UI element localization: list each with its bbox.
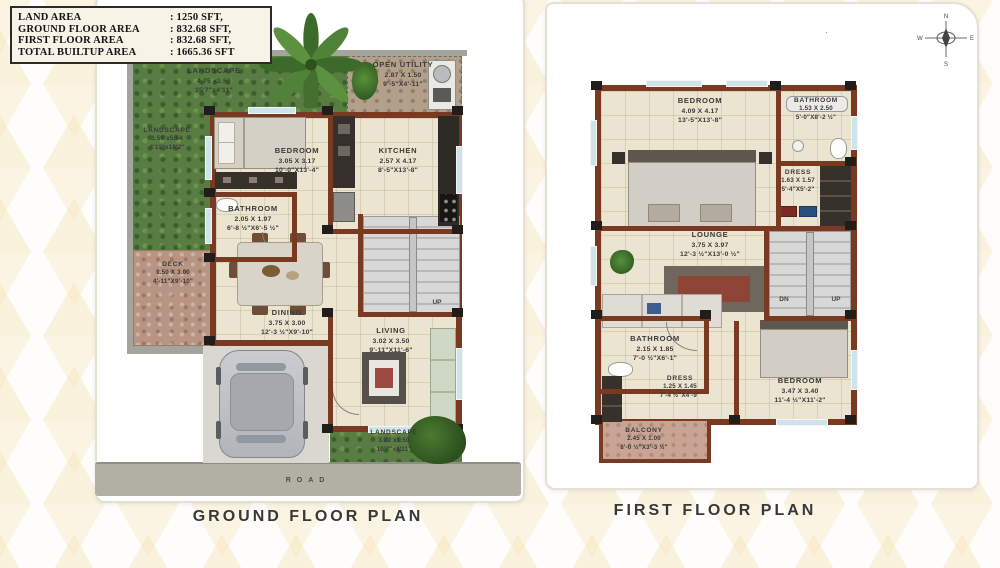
compass-east-label: E <box>970 36 974 42</box>
compass-icon: N S E W <box>916 10 976 68</box>
room-name: BATHROOM <box>210 204 296 215</box>
compass-south-label: S <box>944 62 948 68</box>
room-dim-metric: 3.75 X 3.00 <box>238 319 336 329</box>
column-marker <box>322 225 333 234</box>
room-label-bathroom1: BATHROOM 1.53 X 2.50 5'-0"X8'-2 ½" <box>778 96 854 123</box>
room-dim-imperial: 12'-3 ½"X13'-0 ½" <box>652 250 768 260</box>
wall <box>358 214 363 317</box>
fridge-icon <box>333 192 355 222</box>
sink-icon <box>792 140 804 152</box>
dining-table-icon <box>237 242 323 306</box>
column-marker <box>322 424 333 433</box>
room-dim-metric: 1.63 X 1.57 <box>770 177 826 186</box>
road-strip: ROAD <box>95 462 521 496</box>
room-dim-imperial: 10'7"x4'11" <box>348 446 440 455</box>
room-dim-imperial: 8'-0 ½"X3'-3 ½" <box>606 444 682 453</box>
bed-icon <box>760 320 848 378</box>
room-name: BALCONY <box>606 426 682 435</box>
room-dim-imperial: 7'-0 ½"X6'-1" <box>606 354 704 364</box>
room-dim-imperial: 4'-11"X9'-10" <box>136 278 210 287</box>
room-label-bedroom: BEDROOM 3.05 X 3.17 10'-0"X13'-4" <box>242 146 352 176</box>
column-marker <box>700 310 711 319</box>
storage-box-icon <box>779 206 797 217</box>
room-dim-metric: 2.45 X 1.00 <box>606 435 682 444</box>
room-label-bathroom2: BATHROOM 2.15 X 1.85 7'-0 ½"X6'-1" <box>606 334 704 364</box>
room-dim-metric: 4.75 x1.50 <box>158 77 270 87</box>
window <box>726 80 768 87</box>
room-label-dress2: DRESS 1.25 X 1.45 7'-4 ½"X4'-9" <box>638 374 722 401</box>
column-marker <box>452 106 463 115</box>
toilet-icon <box>830 138 847 159</box>
legend-label: FIRST FLOOR AREA <box>18 35 170 47</box>
nightstand-icon <box>612 152 625 164</box>
room-label-bedroom2: BEDROOM 3.47 X 3.40 11'-4 ½"X11'-2" <box>744 376 856 406</box>
column-marker <box>591 221 602 230</box>
room-label-balcony: BALCONY 2.45 X 1.00 8'-0 ½"X3'-3 ½" <box>606 426 682 453</box>
room-dim-metric: 3.22 x1.50 <box>348 437 440 446</box>
room-dim-metric: 1.25 X 1.45 <box>638 383 722 392</box>
first-floor-title: FIRST FLOOR PLAN <box>560 502 870 520</box>
window <box>776 419 828 426</box>
room-label-bedroom1: BEDROOM 4.09 X 4.17 13'-5"X13'-8" <box>640 96 760 126</box>
stove-icon <box>440 194 457 222</box>
room-name: BATHROOM <box>778 96 854 105</box>
room-label-kitchen: KITCHEN 2.57 X 4.17 8'-5"X13'-8" <box>356 146 440 176</box>
window <box>590 120 597 166</box>
column-marker <box>452 225 463 234</box>
room-dim-imperial: 9'-11"X11'-6" <box>346 346 436 356</box>
room-label-landscape-top: LANDSCAPE 4.75 x1.50 15'7"x4'11" <box>158 66 270 96</box>
column-marker <box>845 310 856 319</box>
legend-value: : 1250 SFT, <box>170 12 223 24</box>
column-marker <box>591 310 602 319</box>
room-dim-metric: 1.53 X 2.50 <box>778 105 854 114</box>
room-dim-metric: 2.15 X 1.85 <box>606 345 704 355</box>
door-swing <box>826 32 827 33</box>
wall <box>358 312 462 317</box>
room-name: KITCHEN <box>356 146 440 157</box>
wall <box>734 321 739 421</box>
room-name: BEDROOM <box>242 146 352 157</box>
column-marker <box>452 308 463 317</box>
wall <box>210 340 332 346</box>
column-marker <box>204 188 215 197</box>
room-dim-imperial: 11'-4 ½"X11'-2" <box>744 396 856 406</box>
room-dim-imperial: 8'-5"X13'-8" <box>356 166 440 176</box>
legend-value: : 1665.36 SFT <box>170 47 235 59</box>
legend-row: GROUND FLOOR AREA : 832.68 SFT, <box>18 24 264 36</box>
window <box>248 107 296 114</box>
nightstand-icon <box>759 152 772 164</box>
wall <box>210 192 296 197</box>
floor-plan-sheet: LAND AREA : 1250 SFT, GROUND FLOOR AREA … <box>0 0 1000 568</box>
room-dim-imperial: 9'-5"X4'-11" <box>350 80 456 90</box>
room-dim-imperial: 10'-0"X13'-4" <box>242 166 352 176</box>
room-dim-metric: 3.02 X 3.50 <box>346 337 436 347</box>
room-dim-imperial: 5'-4"X5'-2" <box>770 186 826 195</box>
room-dim-imperial: 5'-0"X8'-2 ½" <box>778 114 854 123</box>
wall <box>601 316 711 321</box>
room-dim-metric: 3.47 X 3.40 <box>744 387 856 397</box>
window <box>646 80 702 87</box>
palm-tree-icon <box>258 12 364 108</box>
column-marker <box>204 106 215 115</box>
room-dim-metric: 1.50 X 3.00 <box>136 269 210 278</box>
legend-label: TOTAL BUILTUP AREA <box>18 47 170 59</box>
column-marker <box>845 415 856 424</box>
room-dim-metric: 4.09 X 4.17 <box>640 107 760 117</box>
column-marker <box>591 415 602 424</box>
legend-value: : 832.68 SFT, <box>170 35 231 47</box>
room-dim-metric: 3.05 X 3.17 <box>242 157 352 167</box>
wall <box>764 316 851 321</box>
room-label-dress1: DRESS 1.63 X 1.57 5'-4"X5'-2" <box>770 168 826 195</box>
room-dim-imperial: 12'-3 ½"X9'-10" <box>238 328 336 338</box>
room-name: DRESS <box>770 168 826 177</box>
room-dim-imperial: 7'-4 ½"X4'-9" <box>638 392 722 401</box>
room-name: LANDSCAPE <box>158 66 270 77</box>
legend-row: LAND AREA : 1250 SFT, <box>18 12 264 24</box>
legend-label: LAND AREA <box>18 12 170 24</box>
room-name: DRESS <box>638 374 722 383</box>
column-marker <box>845 157 856 166</box>
room-name: LANDSCAPE <box>126 126 208 135</box>
column-marker <box>770 81 781 90</box>
room-dim-metric: 2.57 X 4.17 <box>356 157 440 167</box>
room-name: DECK <box>136 260 210 269</box>
room-name: OPEN UTILITY <box>350 60 456 71</box>
window <box>456 348 463 400</box>
room-dim-metric: 2.05 X 1.97 <box>210 215 296 225</box>
column-marker <box>845 221 856 230</box>
legend-row: FIRST FLOOR AREA : 832.68 SFT, <box>18 35 264 47</box>
stairs-dn-label: DN <box>772 296 796 303</box>
wall <box>776 161 851 166</box>
room-dim-imperial: 13'-5"X13'-8" <box>640 116 760 126</box>
road-label: ROAD <box>286 477 331 484</box>
room-label-landscape-left: LANDSCAPE 1.50 x5.54 4'11"x18'2" <box>126 126 208 153</box>
room-dim-metric: 2.87 X 1.50 <box>350 71 456 81</box>
storage-box-icon <box>799 206 817 217</box>
ground-floor-title: GROUND FLOOR PLAN <box>95 508 521 526</box>
window <box>456 146 463 194</box>
area-legend: LAND AREA : 1250 SFT, GROUND FLOOR AREA … <box>10 6 272 64</box>
legend-label: GROUND FLOOR AREA <box>18 24 170 36</box>
column-marker <box>845 81 856 90</box>
room-name: DINING <box>238 308 336 319</box>
room-label-lounge: LOUNGE 3.75 X 3.97 12'-3 ½"X13'-0 ½" <box>652 230 768 260</box>
room-label-landscape-bottom: LANDSCAPE 3.22 x1.50 10'7"x4'11" <box>348 428 440 455</box>
room-dim-metric: 1.50 x5.54 <box>126 135 208 144</box>
room-label-deck: DECK 1.50 X 3.00 4'-11"X9'-10" <box>136 260 210 287</box>
toilet-icon <box>608 362 633 377</box>
room-dim-imperial: 6'-8 ½"X6'-5 ½" <box>210 224 296 234</box>
car-icon <box>219 350 305 458</box>
stairs-icon <box>769 231 851 317</box>
column-marker <box>729 415 740 424</box>
room-name: BEDROOM <box>640 96 760 107</box>
legend-value: : 832.68 SFT, <box>170 24 231 36</box>
room-dim-metric: 3.75 X 3.97 <box>652 241 768 251</box>
room-name: LIVING <box>346 326 436 337</box>
room-name: LOUNGE <box>652 230 768 241</box>
room-name: BATHROOM <box>606 334 704 345</box>
compass-north-label: N <box>944 14 948 20</box>
stairs-up-label: UP <box>824 296 848 303</box>
room-name: LANDSCAPE <box>348 428 440 437</box>
column-marker <box>204 336 215 345</box>
tv-unit-icon <box>362 352 406 404</box>
room-dim-imperial: 4'11"x18'2" <box>126 144 208 153</box>
room-label-dining: DINING 3.75 X 3.00 12'-3 ½"X9'-10" <box>238 308 336 338</box>
room-label-bathroom: BATHROOM 2.05 X 1.97 6'-8 ½"X6'-5 ½" <box>210 204 296 234</box>
room-label-open-utility: OPEN UTILITY 2.87 X 1.50 9'-5"X4'-11" <box>350 60 456 90</box>
legend-row: TOTAL BUILTUP AREA : 1665.36 SFT <box>18 47 264 59</box>
window <box>590 246 597 286</box>
bed-icon <box>628 150 756 228</box>
room-dim-imperial: 15'7"x4'11" <box>158 86 270 96</box>
room-label-living: LIVING 3.02 X 3.50 9'-11"X11'-6" <box>346 326 436 356</box>
room-name: BEDROOM <box>744 376 856 387</box>
wardrobe-icon <box>602 376 622 422</box>
column-marker <box>591 81 602 90</box>
wall <box>330 229 462 234</box>
compass-west-label: W <box>917 36 923 42</box>
wall <box>210 257 296 262</box>
stairs-up-label: UP <box>420 299 454 306</box>
